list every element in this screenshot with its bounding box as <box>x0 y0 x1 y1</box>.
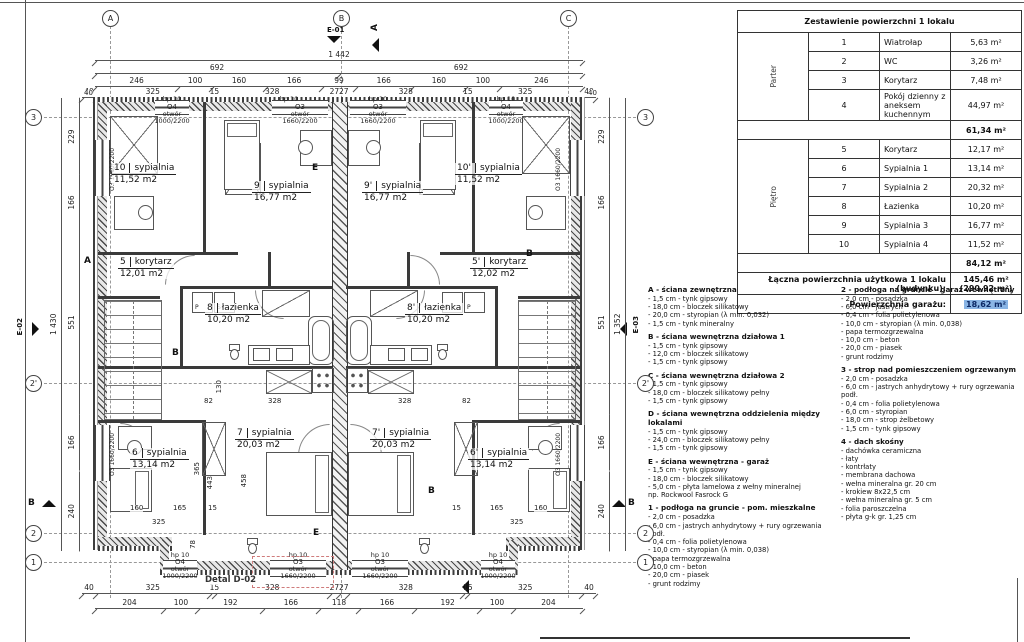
row-area: 10,20 m² <box>951 197 1022 216</box>
dim-value: 240 <box>68 471 80 551</box>
room-number: 7' <box>372 428 380 438</box>
room-name: sypialnia <box>142 448 187 458</box>
toilet <box>418 538 431 554</box>
legend-section: B - ściana wewnętrzna działowa 1 - 1,5 c… <box>648 333 838 367</box>
room-label-8p: 8'łazienka 10,20 m2 <box>405 303 463 325</box>
room-area: 10,20 m2 <box>205 315 261 325</box>
room-label-8: 8łazienka 10,20 m2 <box>205 303 261 325</box>
section-b-left-label: B <box>28 498 35 508</box>
row-number: 10 <box>809 235 880 254</box>
room-number: 6' <box>470 448 478 458</box>
wall-int-corridor-left <box>98 252 238 255</box>
dim-left-overall: 1 430 <box>50 98 62 551</box>
interior-dim: 82 <box>462 398 471 405</box>
room-label-10: 10sypialnia 11,52 m2 <box>112 163 176 185</box>
window-tag-o3: O3 otwór 1660/2200 <box>271 104 329 125</box>
interior-dim: 458 <box>241 474 248 487</box>
row-number: 6 <box>809 159 880 178</box>
cabinet <box>266 370 312 394</box>
row-area: 44,97 m² <box>951 90 1022 121</box>
sink <box>253 348 270 361</box>
dim-value: 192 <box>415 599 480 610</box>
room-name: łazienka <box>217 303 259 313</box>
row-number: 3 <box>809 71 880 90</box>
window-code: O3 <box>555 182 562 191</box>
wall-type-letter: B <box>526 249 533 259</box>
wall-type-letter: A <box>84 256 91 266</box>
chair <box>528 205 543 220</box>
wall-type-letter: E <box>312 163 318 173</box>
wall-bath-right-side <box>495 286 498 368</box>
room-number: 9 <box>254 181 260 191</box>
dim-value: 27 <box>339 584 348 595</box>
window-sill-label: hp 10 <box>361 95 395 103</box>
legend-section: D - ściana wewnętrzna oddzielenia między… <box>648 410 838 452</box>
dim-edge-offset: 40 <box>84 90 93 97</box>
dim-value: 551 <box>598 230 610 415</box>
room-name: sypialnia <box>129 163 174 173</box>
wall-room6-right-top <box>475 420 580 423</box>
axis-bubble-3-right: 3 <box>637 109 654 126</box>
group-label: Piętro <box>769 186 778 208</box>
table-title: Zestawienie powierzchni 1 lokalu <box>738 11 1022 33</box>
legend-section-body: - 1,5 cm - tynk gipsowy - 24,0 cm - bloc… <box>648 428 838 453</box>
room-name: sypialnia <box>376 181 421 191</box>
hob <box>346 368 368 393</box>
wall-type-letter: E <box>313 528 319 538</box>
dim-value: 100 <box>466 77 500 88</box>
interior-dim: 165 <box>173 505 186 512</box>
group-cell-pietro: Piętro <box>738 140 809 254</box>
hob <box>312 368 334 393</box>
window-tag-o3: O3 otwór 1660/2200 <box>349 104 407 125</box>
dim-value: 118 <box>319 599 359 610</box>
room-number: 8' <box>407 303 415 313</box>
room-number: 10' <box>457 163 471 173</box>
row-number: 5 <box>809 140 880 159</box>
detail-callout-box <box>252 556 334 588</box>
dim-value: 160 <box>212 77 266 88</box>
legend-section: 3 - strop nad pomieszczeniem ogrzewanym … <box>841 366 1022 433</box>
window-size: 1660/2200 <box>555 432 562 465</box>
room-name: sypialnia <box>264 181 309 191</box>
room-area: 11,52 m2 <box>455 175 522 185</box>
dim-value: 166 <box>68 175 80 231</box>
legend-section-body: - 1,5 cm - tynk gipsowy - 18,0 cm - bloc… <box>648 380 838 405</box>
window-size: 1660/2200 <box>109 432 116 465</box>
room-area: 13,14 m2 <box>130 460 189 470</box>
room-label-6: 6sypialnia 13,14 m2 <box>130 448 189 470</box>
room-area: 12,02 m2 <box>470 269 528 279</box>
legend-section-body: - dachówka ceramiczna - łaty - kontrłaty… <box>841 447 1022 522</box>
row-name: Sypialnia 3 <box>880 216 951 235</box>
window-tag-o4: O4 otwór 1000/2200 <box>151 559 209 580</box>
total-value-main: 145,46 m² <box>963 275 1009 284</box>
interior-dim: 15 <box>208 505 217 512</box>
bathtub <box>346 316 372 365</box>
dim-value: 328 <box>348 584 463 595</box>
window-code: O3 <box>109 467 116 476</box>
dim-value: 692 <box>339 64 583 75</box>
wall-stairs-left-top <box>98 296 160 299</box>
room-area: 12,01 m2 <box>118 269 174 279</box>
row-name: Łazienka <box>880 197 951 216</box>
room-number: 5' <box>472 257 480 267</box>
legend-section-title: D - ściana wewnętrzna oddzielenia między… <box>648 410 838 428</box>
row-name: Wiatrołap <box>880 33 951 52</box>
room-label-7p: 7'sypialnia 20,03 m2 <box>370 428 431 450</box>
dim-value: 192 <box>198 599 263 610</box>
row-name: Korytarz <box>880 140 951 159</box>
dim-value: 166 <box>356 77 412 88</box>
toilet <box>246 538 259 554</box>
axis-bubble-2p-left: 2' <box>25 375 42 392</box>
room-name: korytarz <box>130 257 172 267</box>
chair <box>298 140 313 155</box>
legend-section-title: E - ściana wewnętrzna - garaż <box>648 458 838 467</box>
sink <box>388 348 405 361</box>
subtotal-pietro: 84,12 m² <box>951 254 1022 273</box>
dim-value: 229 <box>68 98 80 175</box>
row-number: 1 <box>809 33 880 52</box>
dim-value: 40 <box>582 584 596 595</box>
row-number: 9 <box>809 216 880 235</box>
interior-dim: 160 <box>534 505 547 512</box>
wall-stairs-right-top <box>518 296 580 299</box>
legend-column-left: A - ściana zewnętrzna - 1,5 cm - tynk gi… <box>648 286 838 588</box>
room-area: 20,03 m2 <box>370 440 431 450</box>
double-bed <box>266 452 332 516</box>
window-tag-o3-side: O3 1660/2200 <box>556 423 562 485</box>
window-left-o3-lower <box>95 425 110 481</box>
legend-section-title: A - ściana zewnętrzna <box>648 286 838 295</box>
wall-int-corridor-right <box>440 252 580 255</box>
toilet <box>228 344 241 360</box>
section-b-right-label: B <box>628 498 635 508</box>
sheet-border-bottom <box>540 637 910 639</box>
row-name: Pokój dzienny z aneksem kuchennym <box>880 90 951 121</box>
dim-value: 166 <box>263 599 319 610</box>
legend-section: C - ściana wewnętrzna działowa 2 - 1,5 c… <box>648 372 838 406</box>
section-a-top-label: A <box>370 24 380 31</box>
sheet-border-right <box>1017 578 1018 642</box>
dim-value: 1 352 <box>614 98 626 551</box>
dim-bottom-row1: 403251532827273281532540 <box>82 584 596 594</box>
staircase-left <box>104 300 162 420</box>
window-size: 1660/2200 <box>282 117 317 125</box>
dim-value: 1 442 <box>95 51 583 62</box>
elevation-marker-e02-icon <box>32 322 39 336</box>
legend-section-title: 4 - dach skośny <box>841 438 1022 447</box>
row-area: 16,77 m² <box>951 216 1022 235</box>
detail-callout-label: Detal D-02 <box>205 575 256 585</box>
legend-section-title: 3 - strop nad pomieszczeniem ogrzewanym <box>841 366 1022 375</box>
subtotal-spacer <box>738 254 951 273</box>
row-area: 12,17 m² <box>951 140 1022 159</box>
window-left-o3-upper <box>95 140 110 196</box>
interior-dim: 365 <box>194 462 201 475</box>
dim-right-segments: 229166551166240 <box>598 98 610 551</box>
sheet-border-top <box>0 2 1024 3</box>
window-size: 1000/2200 <box>488 117 523 125</box>
axis-bubble-A: A <box>102 10 119 27</box>
window-tag-o3-side: O3 1660/2200 <box>556 138 562 200</box>
window-size: 1660/2200 <box>555 147 562 180</box>
window-right-o3-upper <box>570 140 585 196</box>
group-label: Parter <box>769 65 778 88</box>
room-label-9p: 9'sypialnia 16,77 m2 <box>362 181 423 203</box>
window-right-o3-lower <box>570 425 585 481</box>
axis-bubble-2-right: 2 <box>637 525 654 542</box>
legend-section-title: 2 - podłoga na gruncie - garaż wewnętrzn… <box>841 286 1022 295</box>
legend-column-right: 2 - podłoga na gruncie - garaż wewnętrzn… <box>841 286 1022 521</box>
room-area: 16,77 m2 <box>362 193 423 203</box>
room-area: 20,03 m2 <box>235 440 294 450</box>
dim-value: 1 430 <box>50 98 62 551</box>
elevation-marker-e01-icon <box>327 36 341 43</box>
cabinet <box>368 370 414 394</box>
row-number: 7 <box>809 178 880 197</box>
subtotal-parter: 61,34 m² <box>951 121 1022 140</box>
room-area: 11,52 m2 <box>112 175 176 185</box>
dim-value: 246 <box>500 77 583 88</box>
room-name: korytarz <box>484 257 526 267</box>
shower <box>262 290 310 317</box>
room-number: 8 <box>207 303 213 313</box>
dim-top-row3: 24610016016699166160100246 <box>95 76 583 87</box>
room-area: 13,14 m2 <box>468 460 529 470</box>
interior-dim: 160 <box>130 505 143 512</box>
bed <box>224 120 260 190</box>
dim-value: 166 <box>359 599 415 610</box>
interior-dim: 325 <box>510 519 523 526</box>
dim-right-overall: 1 352 <box>614 98 626 551</box>
area-summary-table: Zestawienie powierzchni 1 lokalu Parter … <box>737 10 1022 314</box>
room-area: 10,20 m2 <box>405 315 463 325</box>
wall-type-letter: B <box>428 486 435 496</box>
axis-bubble-2p-right: 2' <box>637 375 654 392</box>
window-size: 1000/2200 <box>154 117 189 125</box>
room-name: sypialnia <box>247 428 292 438</box>
window-sill-label: hp 10 <box>272 95 306 103</box>
row-name: WC <box>880 52 951 71</box>
dim-value: 99 <box>322 77 355 88</box>
staircase-right <box>518 300 576 420</box>
row-name: Sypialnia 1 <box>880 159 951 178</box>
window-sill-label: hp 10 <box>155 95 189 103</box>
window-tag-o4: O4 otwór 1000/2200 <box>477 104 535 125</box>
dim-value: 166 <box>598 175 610 231</box>
window-size: 1000/2200 <box>480 572 515 580</box>
interior-dim: 165 <box>490 505 503 512</box>
row-number: 4 <box>809 90 880 121</box>
room-name: sypialnia <box>384 428 429 438</box>
room-label-6p: 6'sypialnia 13,14 m2 <box>468 448 529 470</box>
room-name: sypialnia <box>475 163 520 173</box>
legend-section-body: - 1,5 cm - tynk gipsowy - 18,0 cm - bloc… <box>648 466 838 499</box>
axis-bubble-3-left: 3 <box>25 109 42 126</box>
dim-value: 204 <box>514 599 583 610</box>
interior-dim: 15 <box>452 505 461 512</box>
dim-value: 246 <box>95 77 178 88</box>
bathtub <box>308 316 334 365</box>
window-size: 1660/2200 <box>360 117 395 125</box>
legend-section-body: - 1,5 cm - tynk gipsowy - 12,0 cm - bloc… <box>648 342 838 367</box>
legend-section-title: B - ściana wewnętrzna działowa 1 <box>648 333 838 342</box>
window-tag-o3-side: O3 1660/2200 <box>110 423 116 485</box>
sheet-border-left <box>25 0 26 642</box>
window-code: O3 <box>555 467 562 476</box>
legend-section-title: C - ściana wewnętrzna działowa 2 <box>648 372 838 381</box>
interior-dim: 325 <box>152 519 165 526</box>
window-tag-o4: O4 otwór 1000/2200 <box>143 104 201 125</box>
toilet <box>436 344 449 360</box>
legend-section-body: - 1,5 cm - tynk gipsowy - 18,0 cm - bloc… <box>648 295 838 328</box>
sink <box>411 348 428 361</box>
axis-bubble-1-left: 1 <box>25 554 42 571</box>
legend-section: 2 - podłoga na gruncie - garaż wewnętrzn… <box>841 286 1022 361</box>
row-number: 8 <box>809 197 880 216</box>
wall-bath-left-side <box>180 286 183 368</box>
dim-value: 166 <box>266 77 322 88</box>
dim-value: 325 <box>468 584 582 595</box>
subtotal-spacer <box>738 121 951 140</box>
dim-value: 240 <box>598 471 610 551</box>
legend-section: E - ściana wewnętrzna - garaż - 1,5 cm -… <box>648 458 838 500</box>
dim-value: 40 <box>82 584 96 595</box>
dim-value: 551 <box>68 230 80 415</box>
dim-edge-offset: 40 <box>588 90 597 97</box>
washer: P <box>464 292 485 313</box>
row-area: 11,52 m² <box>951 235 1022 254</box>
dim-value: 166 <box>598 415 610 471</box>
dim-value: 160 <box>412 77 466 88</box>
group-cell-parter: Parter <box>738 33 809 121</box>
room-label-5p: 5'korytarz 12,02 m2 <box>470 257 528 279</box>
room-label-7: 7sypialnia 20,03 m2 <box>235 428 294 450</box>
window-size: 1000/2200 <box>162 572 197 580</box>
legend-section-body: - 2,0 cm - posadzka - 6,0 cm - jastrych … <box>841 375 1022 433</box>
row-name: Korytarz <box>880 71 951 90</box>
room-number: 5 <box>120 257 126 267</box>
elevation-marker-e01-label: E-01 <box>327 26 344 34</box>
dim-value: 204 <box>95 599 164 610</box>
wall-bath-left-top <box>180 286 332 289</box>
row-name: Sypialnia 4 <box>880 235 951 254</box>
dim-top-overall: 1 442 <box>95 50 583 61</box>
wall-int-stub-left <box>268 252 271 288</box>
dim-left-segments: 229166551166240 <box>68 98 80 551</box>
room-number: 10 <box>114 163 125 173</box>
window-tag-o4: O4 otwór 1000/2200 <box>469 559 527 580</box>
double-bed <box>348 452 414 516</box>
chair <box>538 440 553 455</box>
axis-bubble-C: C <box>560 10 577 27</box>
row-area: 13,14 m² <box>951 159 1022 178</box>
chair <box>366 140 381 155</box>
interior-dim: 78 <box>190 540 197 549</box>
sink <box>276 348 293 361</box>
elevation-marker-e03-label: E-03 <box>632 316 640 333</box>
dim-value: 166 <box>68 415 80 471</box>
window-sill-label: hp 10 <box>489 95 523 103</box>
dim-value: 692 <box>95 64 339 75</box>
wardrobe <box>202 422 226 476</box>
room-label-5: 5korytarz 12,01 m2 <box>118 257 174 279</box>
wall-type-letter: B <box>172 348 179 358</box>
dim-value: 100 <box>178 77 212 88</box>
room-name: sypialnia <box>482 448 527 458</box>
elevation-marker-e02-label: E-02 <box>16 318 24 335</box>
axis-bubble-B: B <box>333 10 350 27</box>
room-number: 9' <box>364 181 372 191</box>
room-name: łazienka <box>419 303 461 313</box>
dim-top-row2: 692692 <box>95 63 583 74</box>
row-area: 5,63 m² <box>951 33 1022 52</box>
drawing-sheet: A B C 3 2' 2 1 3 2' 2 1 E-01 A E-02 E-03… <box>0 0 1024 642</box>
interior-dim: 82 <box>204 398 213 405</box>
interior-dim: 328 <box>398 398 411 405</box>
room-area: 16,77 m2 <box>252 193 311 203</box>
chair <box>138 205 153 220</box>
row-number: 2 <box>809 52 880 71</box>
wall-bath-right-top <box>346 286 498 289</box>
dim-value: 100 <box>480 599 514 610</box>
legend-section: 4 - dach skośny - dachówka ceramiczna - … <box>841 438 1022 521</box>
axis-bubble-2-left: 2 <box>25 525 42 542</box>
dim-value: 100 <box>164 599 198 610</box>
interior-dim: 443 <box>207 476 214 489</box>
bed <box>420 120 456 190</box>
room-label-10p: 10'sypialnia 11,52 m2 <box>455 163 522 185</box>
row-area: 7,48 m² <box>951 71 1022 90</box>
axis-bubble-1-right: 1 <box>637 554 654 571</box>
door-arc <box>410 255 440 285</box>
row-name: Sypialnia 2 <box>880 178 951 197</box>
room-number: 7 <box>237 428 243 438</box>
dim-value: 325 <box>96 584 210 595</box>
legend-section: A - ściana zewnętrzna - 1,5 cm - tynk gi… <box>648 286 838 328</box>
legend-section-body: - 2,0 cm - posadzka - 6,0 cm - jastrych … <box>841 295 1022 361</box>
wall-int-room10-9 <box>203 102 206 254</box>
interior-dim: 328 <box>268 398 281 405</box>
dim-bottom-row2: 204100192166118166192100204 <box>95 598 583 609</box>
window-tag-o3: O3 otwór 1660/2200 <box>351 559 409 580</box>
room-label-9: 9sypialnia 16,77 m2 <box>252 181 311 203</box>
legend-section-body: - 2,0 cm - posadzka - 6,0 cm - jastrych … <box>648 513 838 588</box>
legend-section-title: 1 - podłoga na gruncie - pom. mieszkalne <box>648 504 838 513</box>
interior-dim: 130 <box>216 380 223 393</box>
room-number: 6 <box>132 448 138 458</box>
row-area: 3,26 m² <box>951 52 1022 71</box>
window-size: 1660/2200 <box>362 572 397 580</box>
row-area: 20,32 m² <box>951 178 1022 197</box>
legend-section: 1 - podłoga na gruncie - pom. mieszkalne… <box>648 504 838 587</box>
dim-value: 229 <box>598 98 610 175</box>
